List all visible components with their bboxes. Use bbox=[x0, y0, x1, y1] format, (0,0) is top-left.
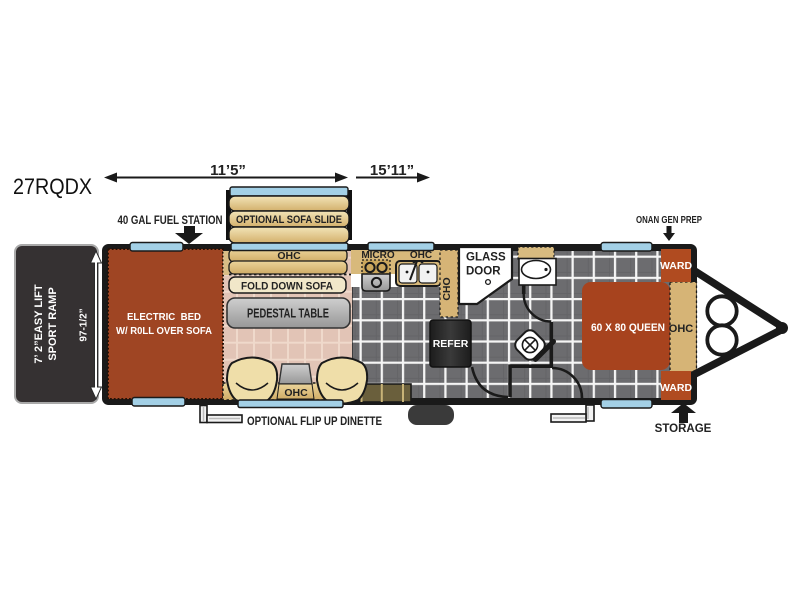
svg-text:60 X 80 QUEEN: 60 X 80 QUEEN bbox=[591, 322, 665, 334]
svg-text:GLASS: GLASS bbox=[466, 252, 506, 264]
svg-text:40 GAL FUEL STATION: 40 GAL FUEL STATION bbox=[118, 213, 223, 227]
svg-text:OPTIONAL FLIP UP DINETTE: OPTIONAL FLIP UP DINETTE bbox=[247, 414, 382, 428]
svg-text:WARD: WARD bbox=[660, 382, 692, 394]
svg-text:ONAN GEN PREP: ONAN GEN PREP bbox=[636, 215, 702, 226]
svg-text:OHC: OHC bbox=[277, 250, 301, 262]
svg-text:W/ R0LL OVER SOFA: W/ R0LL OVER SOFA bbox=[116, 325, 212, 337]
svg-text:REFER: REFER bbox=[433, 338, 469, 350]
svg-text:97-1/2”: 97-1/2” bbox=[79, 308, 90, 341]
svg-text:OHC: OHC bbox=[669, 323, 694, 335]
svg-text:STORAGE: STORAGE bbox=[655, 423, 712, 435]
svg-text:DOOR: DOOR bbox=[466, 266, 501, 278]
svg-text:WARD: WARD bbox=[660, 260, 692, 272]
svg-text:FOLD DOWN SOFA: FOLD DOWN SOFA bbox=[241, 281, 333, 293]
svg-text:11’5”: 11’5” bbox=[210, 162, 246, 179]
svg-text:SPORT RAMP: SPORT RAMP bbox=[47, 287, 59, 360]
svg-text:15’11”: 15’11” bbox=[370, 162, 414, 179]
svg-text:OHC: OHC bbox=[284, 387, 308, 399]
svg-text:OHC: OHC bbox=[410, 250, 432, 261]
svg-text:OPTIONAL SOFA SLIDE: OPTIONAL SOFA SLIDE bbox=[236, 214, 342, 226]
svg-text:7’ 2”EASY LIFT: 7’ 2”EASY LIFT bbox=[33, 284, 45, 364]
svg-text:27RQDX: 27RQDX bbox=[13, 174, 92, 199]
svg-text:CHO: CHO bbox=[441, 277, 453, 300]
svg-text:PEDESTAL TABLE: PEDESTAL TABLE bbox=[247, 307, 329, 321]
svg-text:ELECTRIC BED: ELECTRIC BED bbox=[127, 311, 201, 323]
